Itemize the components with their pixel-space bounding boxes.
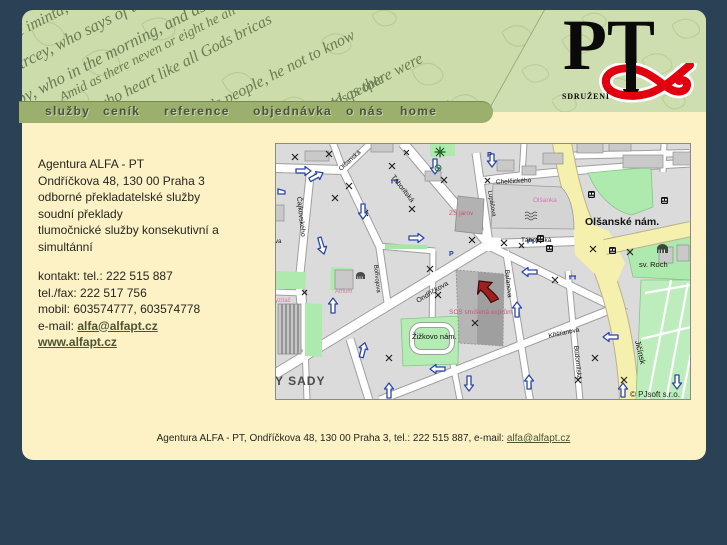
svg-text:va: va	[275, 239, 282, 245]
svg-text:SOS smíšená exprům: SOS smíšená exprům	[449, 308, 513, 316]
svg-text:sv. Roch: sv. Roch	[639, 260, 668, 269]
svg-text:Olšanské nám.: Olšanské nám.	[585, 216, 659, 228]
svg-text:yzítač: yzítač	[275, 298, 291, 304]
svg-text:Žižkovo nám.: Žižkovo nám.	[412, 332, 457, 341]
svg-text:P: P	[487, 150, 492, 159]
svg-text:Olšanka: Olšanka	[533, 197, 557, 204]
svg-text:Y SADY: Y SADY	[275, 374, 325, 388]
svg-text:Atrium: Atrium	[335, 289, 352, 295]
svg-text:© PJsoft s.r.o.: © PJsoft s.r.o.	[630, 390, 680, 399]
svg-text:ZŠ jarov: ZŠ jarov	[449, 208, 474, 217]
svg-text:P: P	[449, 251, 454, 258]
svg-text:Táboritská: Táboritská	[521, 237, 552, 244]
